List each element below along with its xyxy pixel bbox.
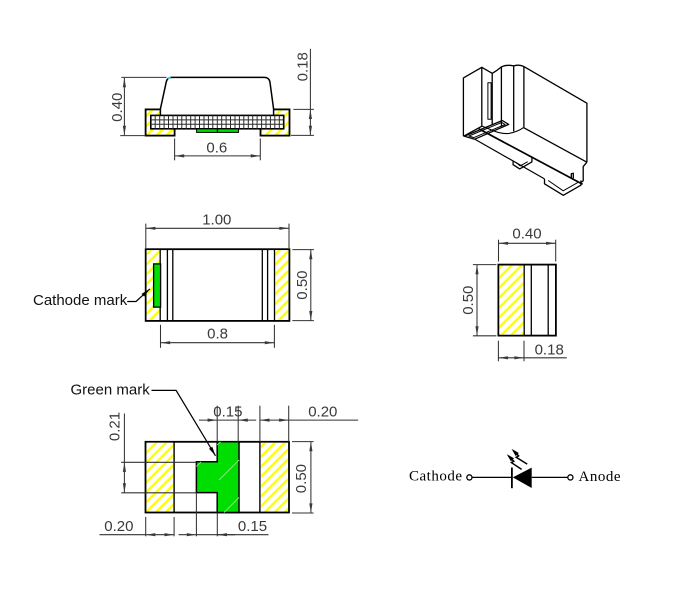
svg-text:0.20: 0.20 <box>104 518 133 535</box>
svg-text:0.40: 0.40 <box>109 93 126 122</box>
svg-text:0.40: 0.40 <box>512 226 541 243</box>
svg-text:0.50: 0.50 <box>460 286 477 315</box>
svg-text:1.00: 1.00 <box>202 212 231 229</box>
svg-text:0.21: 0.21 <box>106 412 123 441</box>
svg-text:0.50: 0.50 <box>293 464 310 493</box>
svg-text:0.15: 0.15 <box>238 518 267 535</box>
svg-text:0.18: 0.18 <box>294 52 311 81</box>
svg-text:Cathode mark: Cathode mark <box>33 292 128 309</box>
svg-text:0.8: 0.8 <box>207 325 228 342</box>
svg-text:0.18: 0.18 <box>535 342 564 359</box>
svg-text:Anode: Anode <box>579 469 622 485</box>
svg-text:0.6: 0.6 <box>206 140 227 157</box>
svg-text:0.50: 0.50 <box>294 270 311 299</box>
svg-text:Cathode: Cathode <box>409 469 463 485</box>
svg-text:0.15: 0.15 <box>213 403 242 420</box>
svg-text:Green mark: Green mark <box>71 382 151 399</box>
svg-text:0.20: 0.20 <box>308 403 337 420</box>
